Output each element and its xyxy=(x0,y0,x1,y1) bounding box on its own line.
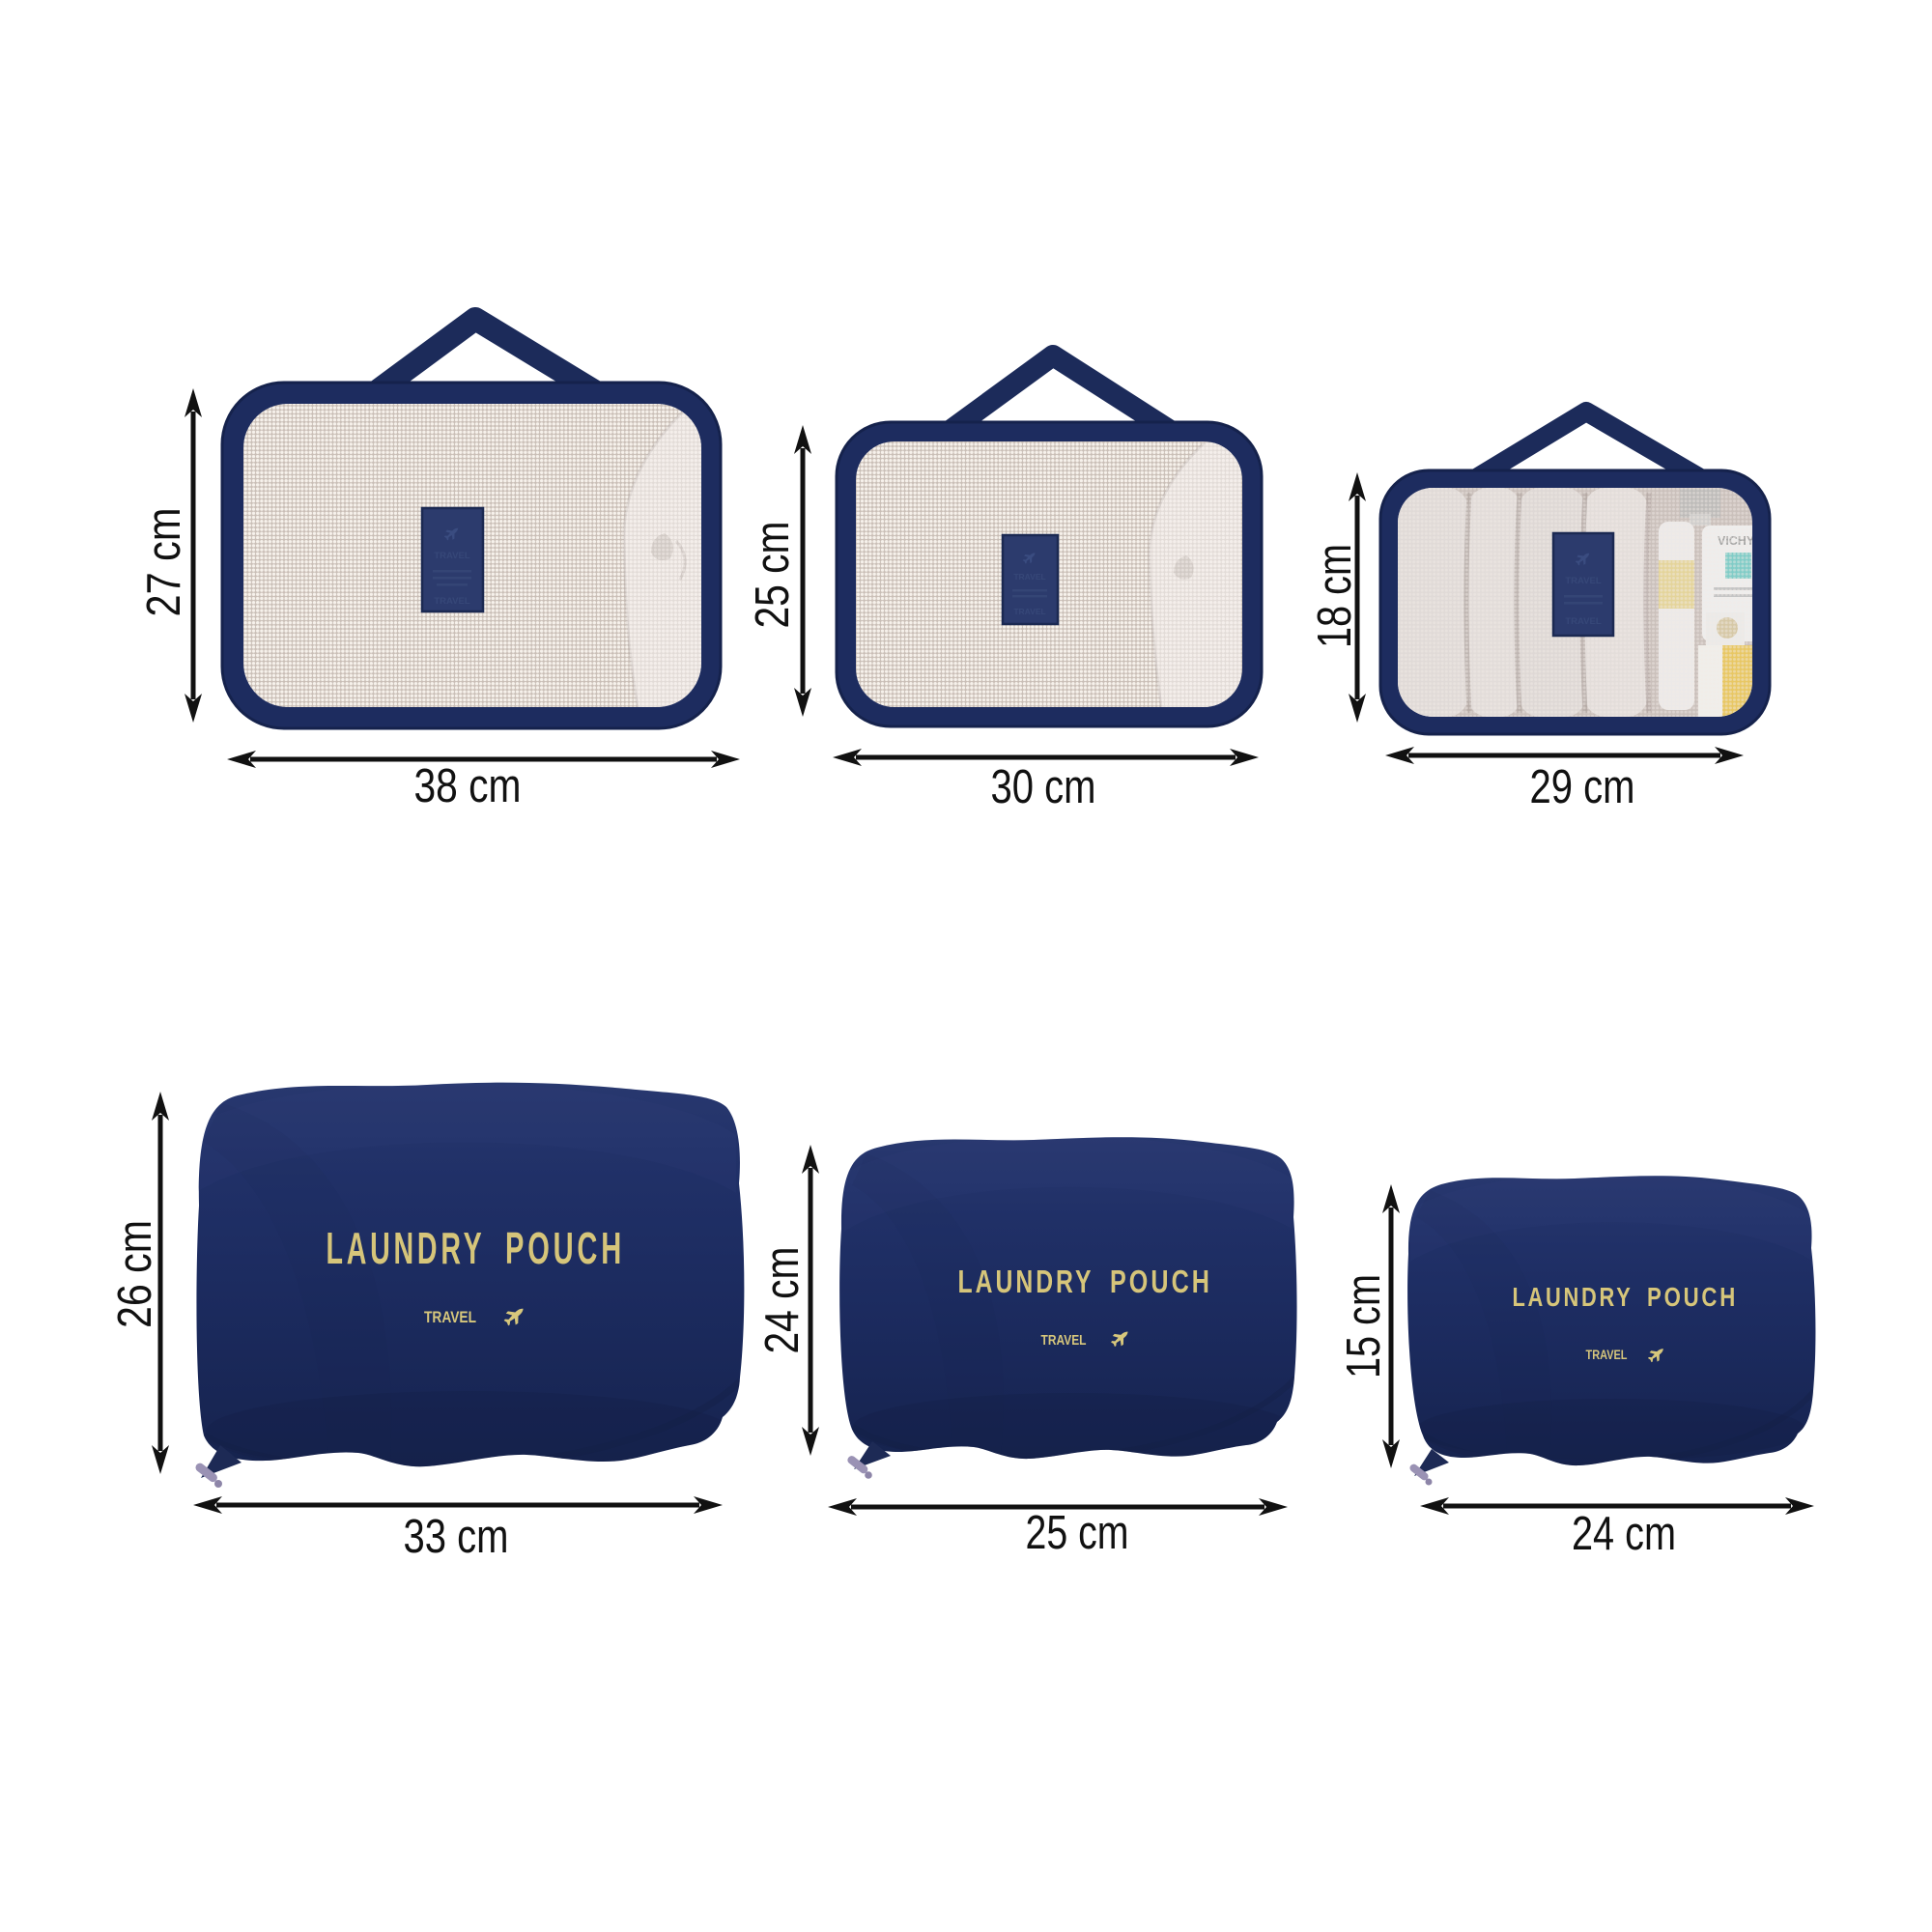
svg-text:TRAVEL: TRAVEL xyxy=(1565,576,1601,586)
svg-text:24 cm: 24 cm xyxy=(756,1247,809,1354)
svg-text:33 cm: 33 cm xyxy=(404,1511,509,1563)
svg-text:26 cm: 26 cm xyxy=(109,1220,161,1328)
svg-text:18 cm: 18 cm xyxy=(1309,544,1361,648)
svg-text:LAUNDRY: LAUNDRY xyxy=(1513,1282,1634,1312)
svg-text:TRAVEL: TRAVEL xyxy=(1013,607,1045,616)
svg-text:24 cm: 24 cm xyxy=(1572,1508,1676,1560)
svg-text:15 cm: 15 cm xyxy=(1338,1274,1390,1378)
svg-text:POUCH: POUCH xyxy=(1110,1264,1212,1299)
svg-text:25 cm: 25 cm xyxy=(1026,1507,1129,1559)
svg-text:TRAVEL: TRAVEL xyxy=(1565,616,1601,627)
svg-text:LAUNDRY: LAUNDRY xyxy=(327,1223,486,1273)
svg-text:TRAVEL: TRAVEL xyxy=(434,551,469,561)
svg-text:TRAVEL: TRAVEL xyxy=(424,1308,476,1326)
svg-text:27 cm: 27 cm xyxy=(138,508,190,617)
svg-text:25 cm: 25 cm xyxy=(747,522,799,629)
svg-text:30 cm: 30 cm xyxy=(991,761,1096,813)
svg-text:POUCH: POUCH xyxy=(1647,1282,1738,1312)
svg-text:TRAVEL: TRAVEL xyxy=(1586,1348,1628,1362)
svg-text:TRAVEL: TRAVEL xyxy=(434,596,469,607)
svg-text:LAUNDRY: LAUNDRY xyxy=(958,1264,1094,1299)
svg-text:POUCH: POUCH xyxy=(505,1223,625,1273)
svg-text:38 cm: 38 cm xyxy=(414,760,522,812)
svg-text:TRAVEL: TRAVEL xyxy=(1013,572,1045,582)
svg-text:29 cm: 29 cm xyxy=(1530,761,1635,813)
svg-text:TRAVEL: TRAVEL xyxy=(1041,1332,1087,1349)
